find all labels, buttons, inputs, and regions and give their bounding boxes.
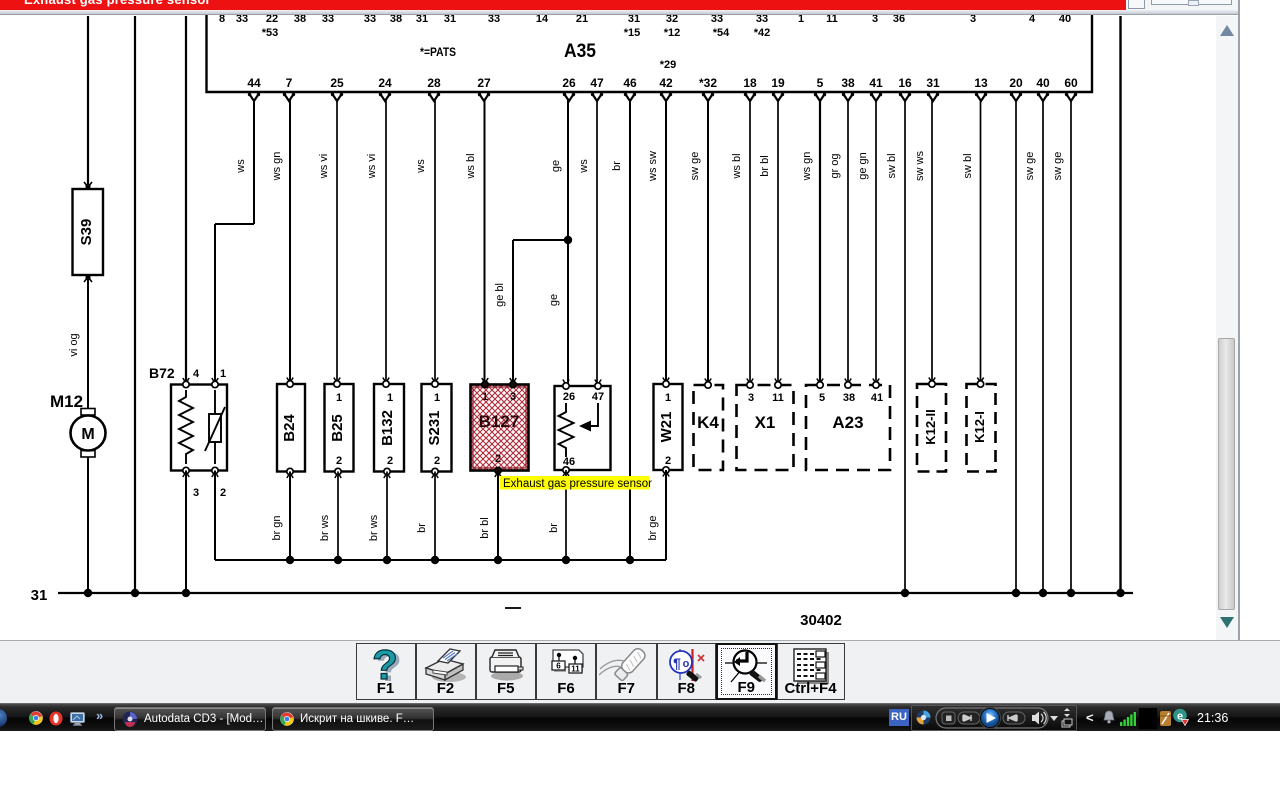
svg-text:5: 5	[817, 76, 824, 90]
svg-text:*12: *12	[664, 27, 681, 39]
svg-text:*53: *53	[262, 27, 279, 39]
svg-text:16: 16	[898, 76, 912, 90]
svg-text:1: 1	[434, 392, 440, 404]
svg-text:vi og: vi og	[68, 333, 80, 356]
svg-text:S39: S39	[78, 219, 95, 246]
svg-text:ge bl: ge bl	[494, 283, 506, 307]
svg-text:1: 1	[482, 391, 488, 403]
svg-text:44: 44	[247, 76, 261, 90]
svg-text:Exhaust gas pressure sensor: Exhaust gas pressure sensor	[503, 478, 652, 490]
svg-text:2: 2	[336, 455, 342, 467]
svg-text:M12: M12	[50, 392, 83, 411]
svg-text:ge: ge	[550, 160, 562, 172]
svg-text:13: 13	[974, 76, 988, 90]
svg-text:5: 5	[819, 392, 825, 404]
svg-text:*15: *15	[624, 27, 641, 39]
svg-text:18: 18	[743, 76, 757, 90]
svg-text:br ws: br ws	[319, 514, 331, 541]
svg-text:46: 46	[623, 76, 637, 90]
svg-text:28: 28	[427, 76, 441, 90]
svg-text:W21: W21	[658, 412, 675, 443]
svg-text:B72: B72	[149, 365, 175, 381]
svg-text:K12-II: K12-II	[923, 409, 938, 444]
svg-text:ws vi: ws vi	[366, 154, 378, 179]
svg-text:br bl: br bl	[479, 517, 491, 538]
svg-text:br: br	[416, 523, 428, 533]
svg-text:42: 42	[659, 76, 673, 90]
svg-text:2: 2	[434, 455, 440, 467]
svg-text:B132: B132	[379, 410, 396, 446]
svg-text:20: 20	[1009, 76, 1023, 90]
svg-text:sw ge: sw ge	[689, 152, 701, 181]
svg-text:19: 19	[771, 76, 785, 90]
svg-text:60: 60	[1064, 76, 1078, 90]
svg-text:11: 11	[571, 665, 580, 674]
svg-text:7: 7	[286, 76, 293, 90]
svg-text:ge gn: ge gn	[857, 152, 869, 180]
svg-text:*42: *42	[754, 27, 771, 39]
svg-text:B24: B24	[281, 414, 298, 442]
svg-text:26: 26	[563, 391, 575, 403]
svg-text:¶: ¶	[673, 655, 681, 671]
svg-text:26: 26	[562, 76, 576, 90]
svg-text:41: 41	[869, 76, 883, 90]
svg-text:o: o	[683, 658, 690, 670]
svg-text:ge: ge	[548, 294, 560, 306]
svg-text:br: br	[548, 523, 560, 533]
svg-text:ws gn: ws gn	[271, 152, 283, 182]
svg-text:br bl: br bl	[759, 155, 771, 176]
svg-text:K12-I: K12-I	[972, 411, 987, 443]
svg-text:38: 38	[843, 392, 855, 404]
svg-text:B25: B25	[329, 414, 346, 442]
svg-text:4: 4	[193, 368, 200, 380]
svg-text:27: 27	[477, 76, 491, 90]
svg-text:sw ge: sw ge	[1024, 152, 1036, 181]
svg-text:3: 3	[748, 392, 754, 404]
svg-text:ws vi: ws vi	[318, 154, 330, 179]
svg-text:25: 25	[330, 76, 344, 90]
svg-text:1: 1	[665, 392, 671, 404]
svg-text:br: br	[611, 161, 623, 171]
svg-text:sw ge: sw ge	[1052, 152, 1064, 181]
svg-text:ws bl: ws bl	[731, 153, 743, 179]
svg-text:*32: *32	[699, 76, 717, 90]
svg-text:2: 2	[495, 453, 501, 465]
svg-text:sw ws: sw ws	[914, 151, 926, 181]
svg-text:*=PATS: *=PATS	[420, 45, 456, 59]
svg-text:47: 47	[590, 76, 604, 90]
svg-text:B127: B127	[479, 412, 520, 431]
svg-text:A23: A23	[832, 413, 863, 432]
svg-text:1: 1	[387, 392, 393, 404]
svg-text:11: 11	[772, 392, 784, 404]
svg-text:X1: X1	[755, 413, 776, 432]
svg-text:31: 31	[31, 587, 48, 604]
svg-text:A35: A35	[564, 41, 596, 62]
svg-text:ws gn: ws gn	[801, 152, 813, 182]
svg-text:*29: *29	[660, 59, 677, 71]
svg-text:sw bl: sw bl	[962, 153, 974, 178]
svg-text:40: 40	[1036, 76, 1050, 90]
svg-text:2: 2	[220, 487, 226, 499]
svg-text:ws sw: ws sw	[647, 151, 659, 182]
svg-text:2: 2	[665, 455, 671, 467]
svg-text:gr og: gr og	[829, 153, 841, 178]
svg-text:ws: ws	[415, 159, 427, 174]
svg-text:ws: ws	[578, 159, 590, 174]
svg-text:46: 46	[563, 456, 575, 468]
svg-text:br ws: br ws	[368, 514, 380, 541]
svg-text:41: 41	[871, 392, 883, 404]
svg-text:M: M	[81, 426, 94, 443]
svg-text:3: 3	[510, 391, 516, 403]
svg-text:ws bl: ws bl	[465, 153, 477, 179]
svg-text:1: 1	[220, 368, 226, 380]
svg-text:sw bl: sw bl	[886, 153, 898, 178]
svg-text:31: 31	[926, 76, 940, 90]
svg-text:3: 3	[193, 487, 199, 499]
svg-text:1: 1	[336, 392, 342, 404]
svg-text:br ge: br ge	[647, 515, 659, 540]
svg-text:6: 6	[556, 662, 561, 671]
svg-text:24: 24	[378, 76, 392, 90]
svg-text:S231: S231	[426, 410, 443, 445]
svg-text:br gn: br gn	[271, 515, 283, 540]
svg-text:47: 47	[592, 391, 604, 403]
svg-text:K4: K4	[697, 413, 719, 432]
svg-text:*54: *54	[713, 27, 730, 39]
svg-text:2: 2	[387, 455, 393, 467]
svg-text:ws: ws	[235, 159, 247, 174]
svg-text:30402: 30402	[800, 612, 842, 629]
svg-text:38: 38	[841, 76, 855, 90]
